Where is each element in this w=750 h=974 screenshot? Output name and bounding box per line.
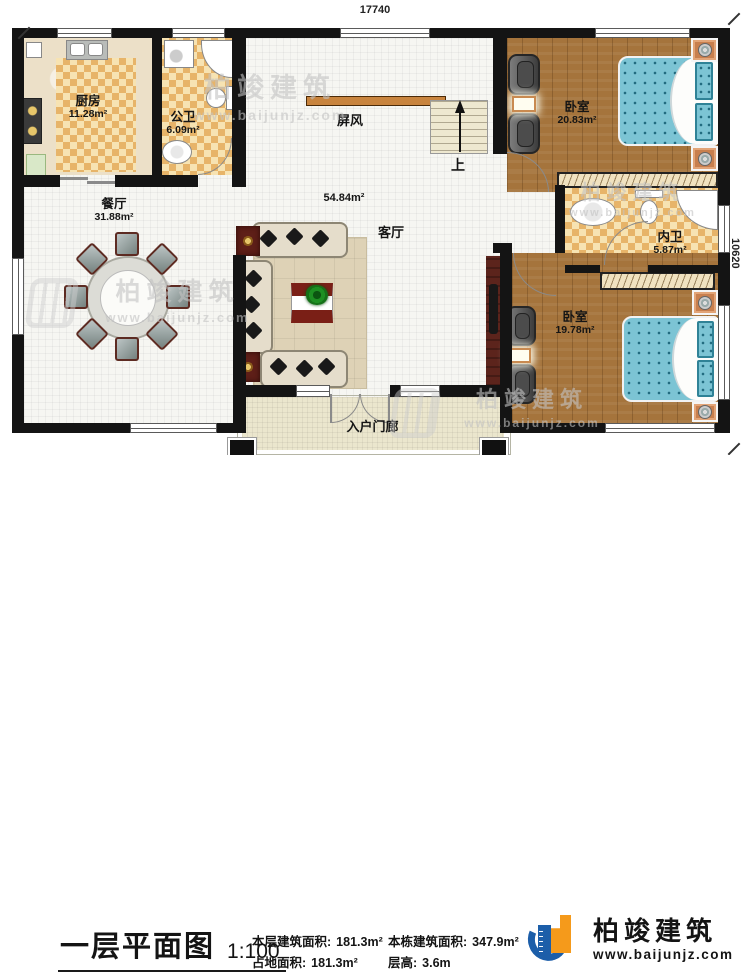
wall — [152, 38, 162, 175]
wall — [440, 385, 505, 397]
sliding-door — [60, 177, 88, 180]
wall — [565, 265, 600, 273]
stat-row: 本栋建筑面积:347.9m² — [388, 932, 519, 953]
wall — [500, 423, 605, 433]
window — [172, 28, 225, 38]
bed-pillow — [697, 360, 714, 397]
room-area: 11.28m² — [69, 108, 108, 120]
room-name: 卧室 — [564, 100, 589, 114]
wall — [112, 28, 172, 38]
stat-row: 层高:3.6m — [388, 953, 519, 974]
room-name: 公卫 — [170, 110, 195, 124]
nightstand — [691, 146, 718, 171]
wardrobe-bedroom-top — [557, 172, 718, 188]
bed-pillow — [697, 321, 714, 358]
wall — [493, 243, 512, 253]
lamp-table — [512, 96, 536, 112]
dimension-right: 10620 — [727, 218, 741, 288]
company-logo-icon — [527, 913, 585, 967]
room-area: 20.83m² — [557, 114, 596, 126]
logo-building-blue — [538, 925, 551, 955]
wall — [715, 423, 730, 433]
stats-column-2: 本栋建筑面积:347.9m² 层高:3.6m — [388, 932, 519, 974]
wall — [232, 38, 246, 175]
kitchen-corner-unit — [26, 42, 42, 58]
sink-basin — [70, 43, 85, 56]
bed-pillow — [695, 103, 713, 141]
washing-machine — [164, 40, 194, 68]
bath-sink-icon — [570, 198, 616, 226]
wall — [12, 38, 24, 258]
dimension-top: 17740 — [330, 4, 420, 16]
stairs-up-label: 上 — [444, 155, 472, 175]
tv-icon — [489, 284, 498, 334]
stat-value: 347.9m² — [472, 935, 519, 949]
stat-row: 本层建筑面积:181.3m² — [252, 932, 383, 953]
stat-label: 层高: — [388, 956, 417, 970]
window — [57, 28, 112, 38]
plan-title: 一层平面图 — [60, 923, 215, 965]
stair-direction-line — [459, 110, 461, 152]
room-name: 餐厅 — [101, 197, 126, 211]
room-area: 5.87m² — [653, 244, 686, 256]
bath-sink-icon — [162, 140, 192, 164]
wall — [232, 175, 246, 187]
wall — [233, 255, 246, 433]
window — [12, 258, 24, 335]
window — [718, 305, 730, 400]
room-label-bedroom-bottom: 卧室 19.78m² — [530, 308, 620, 338]
toilet-icon — [206, 88, 226, 108]
up-arrow-icon — [455, 100, 465, 113]
screen-divider — [306, 96, 446, 106]
dimension-tick — [728, 13, 741, 26]
wardrobe-bedroom-bottom — [600, 272, 715, 290]
room-label-bedroom-top: 卧室 20.83m² — [534, 98, 620, 128]
dimension-tick — [728, 443, 741, 456]
room-name: 内卫 — [657, 230, 682, 244]
nightstand — [691, 38, 718, 62]
stat-value: 181.3m² — [311, 956, 358, 970]
dining-chair — [115, 337, 139, 361]
company-logo: 柏竣建筑 www.baijunjz.com — [527, 913, 734, 967]
window — [340, 28, 430, 38]
stats-column-1: 本层建筑面积:181.3m² 占地面积:181.3m² — [252, 932, 383, 974]
room-label-inner-bath: 内卫 5.87m² — [626, 228, 714, 258]
lamp-table — [509, 348, 531, 363]
dining-chair — [166, 285, 190, 309]
side-table — [236, 226, 260, 256]
company-logo-text: 柏竣建筑 www.baijunjz.com — [593, 918, 734, 962]
room-label-living: 客厅 — [356, 222, 426, 241]
wall — [430, 28, 595, 38]
company-name: 柏竣建筑 — [593, 918, 734, 944]
watermark-logo-icon — [388, 388, 441, 438]
wall — [12, 335, 24, 433]
sliding-door — [87, 181, 115, 184]
dining-table-top — [100, 270, 156, 326]
bed-pillow — [695, 62, 713, 100]
room-label-kitchen: 厨房 11.28m² — [45, 92, 131, 122]
wall — [225, 28, 340, 38]
wall — [240, 385, 296, 397]
wall — [718, 38, 730, 205]
wall — [500, 253, 512, 423]
wall — [648, 265, 718, 273]
toilet-tank — [635, 190, 663, 198]
plant-icon — [306, 285, 328, 305]
window — [595, 28, 690, 38]
wall — [690, 28, 730, 38]
room-area: 6.09m² — [166, 124, 199, 136]
room-label-screen: 屏风 — [318, 110, 382, 129]
room-area: 31.88m² — [94, 211, 133, 223]
stat-label: 本栋建筑面积: — [388, 935, 467, 949]
nightstand — [692, 402, 718, 422]
room-area: 19.78m² — [555, 324, 594, 336]
dining-chair — [115, 232, 139, 256]
stat-label: 本层建筑面积: — [252, 935, 331, 949]
wall — [555, 185, 565, 247]
stove-icon — [23, 98, 42, 144]
nightstand — [692, 290, 718, 315]
sink-basin — [88, 43, 103, 56]
wall — [493, 38, 507, 154]
company-url: www.baijunjz.com — [593, 947, 734, 962]
footer: 一层平面图 1:100 本层建筑面积:181.3m² 占地面积:181.3m² … — [0, 455, 750, 523]
wall — [12, 423, 130, 433]
watermark-logo-icon — [24, 278, 79, 328]
stat-value: 3.6m — [422, 956, 451, 970]
window — [296, 385, 330, 397]
stat-value: 181.3m² — [336, 935, 383, 949]
wall — [12, 175, 60, 187]
room-label-dining: 餐厅 31.88m² — [70, 195, 158, 225]
armchair — [508, 54, 540, 95]
floor-plan: 厨房 11.28m² 公卫 6.09m² 屏风 54.84m² 客厅 餐厅 31… — [0, 0, 750, 455]
window — [130, 423, 217, 433]
room-name: 卧室 — [562, 310, 587, 324]
stat-row: 占地面积:181.3m² — [252, 953, 383, 974]
stat-label: 占地面积: — [252, 956, 306, 970]
wall — [115, 175, 198, 187]
room-name: 厨房 — [75, 94, 100, 108]
room-label-public-bath: 公卫 6.09m² — [140, 108, 226, 138]
living-area-value: 54.84m² — [300, 192, 388, 204]
window — [605, 423, 715, 433]
